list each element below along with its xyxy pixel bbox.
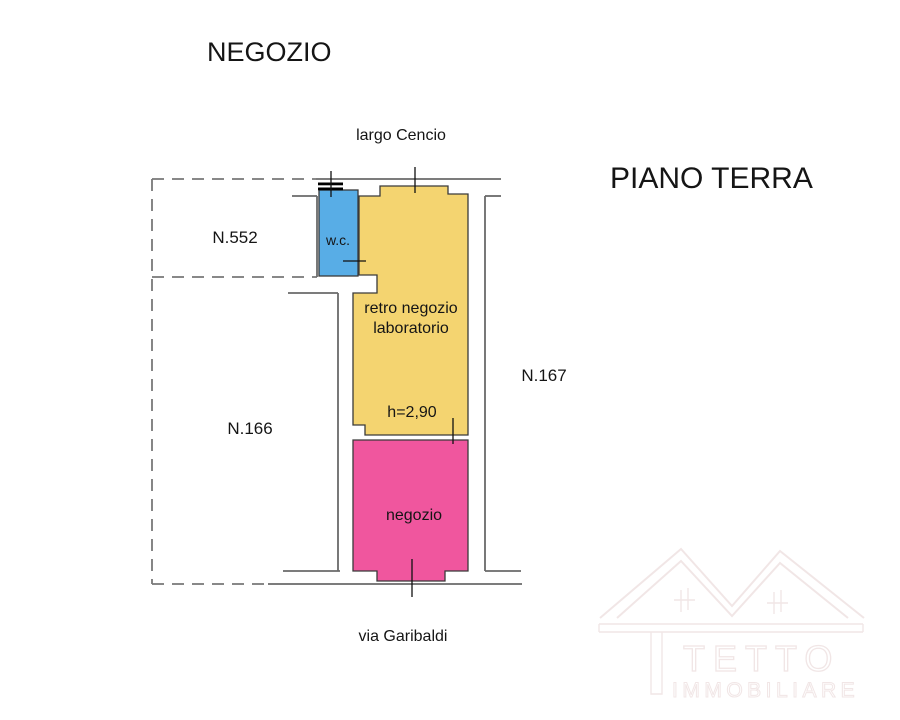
watermark-chimney-left-icon xyxy=(674,588,695,612)
room-label-negozio: negozio xyxy=(386,507,442,524)
floor-plan-canvas: TETTO IMMOBILIARE N xyxy=(0,0,900,720)
watermark-roof-outer-icon xyxy=(600,549,864,618)
street-label-top: largo Cencio xyxy=(356,127,446,144)
watermark-t-stem-icon xyxy=(651,632,662,694)
parcel-label-n167: N.167 xyxy=(521,366,566,385)
watermark-logo: TETTO IMMOBILIARE xyxy=(599,549,864,702)
room-label-retro-line1: retro negozio xyxy=(364,300,457,317)
watermark-subtitle-text: IMMOBILIARE xyxy=(672,679,859,702)
watermark-chimney-right-icon xyxy=(767,590,788,614)
floor-plan-page: TETTO IMMOBILIARE N xyxy=(0,0,900,720)
parcel-label-n166: N.166 xyxy=(227,419,272,438)
street-label-bottom: via Garibaldi xyxy=(359,628,448,645)
parcel-label-n552: N.552 xyxy=(212,228,257,247)
watermark-roof-inner-icon xyxy=(617,561,848,618)
room-height-note: h=2,90 xyxy=(387,404,436,421)
page-title: NEGOZIO xyxy=(207,37,332,67)
room-label-wc: w.c. xyxy=(325,232,350,248)
watermark-baseline-icon xyxy=(599,624,863,632)
watermark-brand-text: TETTO xyxy=(683,638,840,679)
room-label-retro-line2: laboratorio xyxy=(373,320,449,337)
floor-title: PIANO TERRA xyxy=(610,162,813,195)
